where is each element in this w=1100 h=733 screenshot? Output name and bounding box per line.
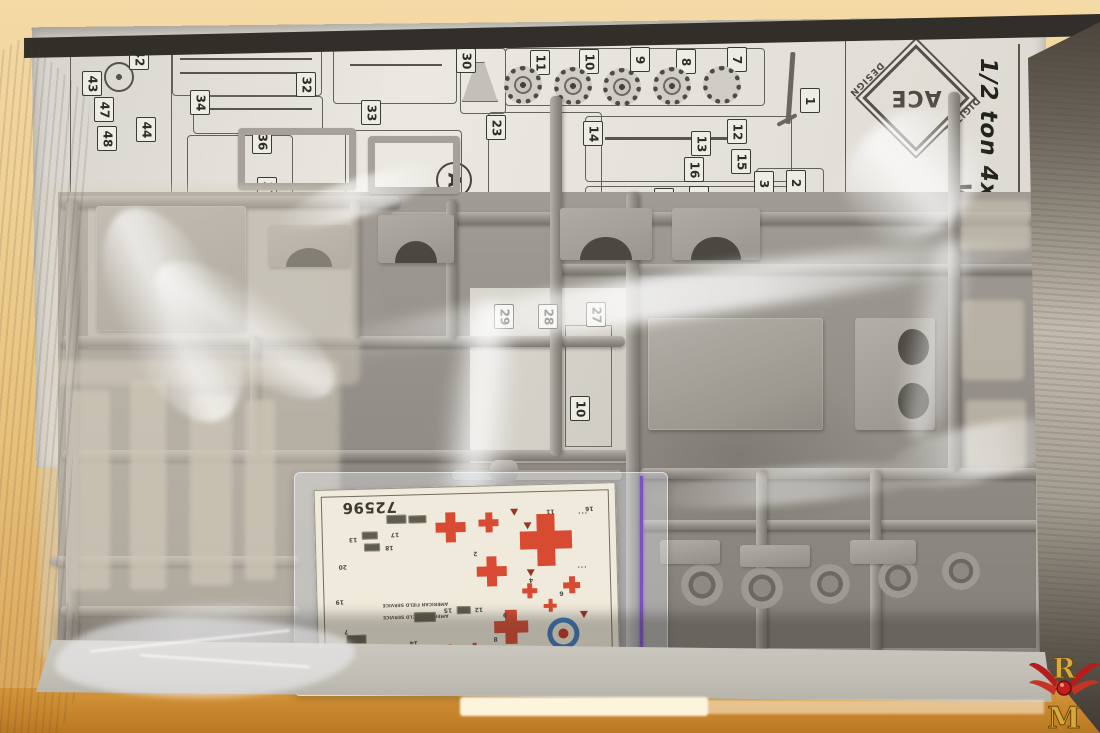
cross-bar-v <box>568 576 574 593</box>
part-number-label: 13 <box>691 131 711 156</box>
part-number: 3 <box>757 179 771 187</box>
decal-number: 17 <box>391 531 400 538</box>
part-number-label: 9 <box>630 47 650 72</box>
part-number: 43 <box>85 75 99 92</box>
cross-bar-v <box>486 556 497 586</box>
diagram-line <box>350 64 442 66</box>
decal-red-cross <box>435 512 466 543</box>
part-number-label: 47 <box>94 97 114 122</box>
rm-watermark-svg: R M <box>1028 638 1100 733</box>
sprue-part-ring <box>741 567 783 609</box>
cross-bar-v <box>527 583 532 598</box>
decal-plate-chip <box>408 515 426 523</box>
sprue-part-block <box>660 540 720 564</box>
decal-dot-group: ··· <box>577 563 587 570</box>
part-number-label: 16 <box>684 157 704 182</box>
watermark-letter-r: R <box>1052 652 1076 685</box>
part-number-label: 43 <box>82 71 102 96</box>
part-number-label: 30 <box>456 48 476 73</box>
watermark-letter-m: M <box>1047 701 1080 733</box>
decal-number: 19 <box>335 598 344 605</box>
cross-bar-v <box>548 598 552 611</box>
sprue-part-ring <box>810 564 850 604</box>
part-number: 9 <box>633 55 647 63</box>
fender-arch-cutout <box>580 237 632 260</box>
part-number: 11 <box>533 54 547 71</box>
sprue-part-frame <box>238 128 356 190</box>
decal-red-cross <box>562 576 579 593</box>
part-number-label: 23 <box>486 115 506 140</box>
rm-watermark-logo: R M <box>1028 638 1100 733</box>
decal-number: 15 <box>444 606 453 613</box>
sprue-part-panel <box>648 318 823 430</box>
part-number-label: 1 <box>800 88 820 113</box>
sprue-part-arc <box>672 208 760 260</box>
sprue-part-arc <box>560 208 652 260</box>
decal-aircraft-mark <box>527 569 535 576</box>
part-number: 12 <box>730 123 744 140</box>
decal-number: 6 <box>559 589 563 596</box>
decal-number: 11 <box>546 508 555 515</box>
decal-plate-chip <box>364 543 380 551</box>
sprue-part-block <box>740 545 810 567</box>
part-number-label: 14 <box>583 121 603 146</box>
part-number: 13 <box>694 135 708 152</box>
part-number: 10 <box>573 400 587 417</box>
part-number: 23 <box>489 119 503 136</box>
decal-red-cross <box>476 556 507 587</box>
fender-arch-cutout <box>395 241 438 263</box>
part-number: 7 <box>730 55 744 63</box>
wheel-hub <box>564 77 582 95</box>
table-reflection-strip <box>460 697 708 716</box>
wheel-drawing <box>703 66 741 104</box>
decal-dot-group: ··· <box>577 509 587 516</box>
table-reflection-strip-2 <box>704 700 1044 714</box>
cross-bar-v <box>485 512 493 532</box>
part-number: 34 <box>193 94 207 111</box>
part-number: 32 <box>299 76 313 93</box>
part-number: 10 <box>582 53 596 70</box>
part-number-label: 48 <box>97 126 117 151</box>
sprue-part-ring <box>942 552 980 590</box>
diagram-line <box>180 72 312 74</box>
wheel-hub <box>663 77 681 95</box>
part-number-label: 12 <box>727 119 747 144</box>
part-number: 2 <box>789 178 803 186</box>
wheel-drawing <box>653 67 691 105</box>
decal-number: 13 <box>349 536 358 543</box>
part-number: 15 <box>734 153 748 170</box>
fender-arch-cutout <box>691 237 740 260</box>
diagram-line <box>605 137 737 140</box>
part-number: 48 <box>100 130 114 147</box>
decal-number: 18 <box>385 544 394 551</box>
decal-aircraft-mark <box>523 522 531 529</box>
sprue-part-arc <box>378 215 454 263</box>
part-number: 8 <box>679 57 693 65</box>
decal-red-cross <box>522 583 537 598</box>
part-number: 44 <box>139 121 153 138</box>
diagram-line <box>180 58 312 60</box>
part-number: 1 <box>803 96 817 104</box>
sprue-part-ghost <box>962 300 1024 380</box>
part-number: 47 <box>97 101 111 118</box>
wheel-hub <box>514 76 532 94</box>
wheel-hub <box>613 78 631 96</box>
part-number-label: 15 <box>731 149 751 174</box>
decal-red-cross <box>543 598 556 611</box>
part-number: 33 <box>364 104 378 121</box>
decal-service-text-1: AMERICAN FIELD SERVICE <box>383 601 449 608</box>
decal-red-cross <box>519 513 572 566</box>
decal-number: 12 <box>475 606 484 613</box>
cross-bar-v <box>445 512 456 542</box>
decal-number: 2 <box>473 550 477 557</box>
part-number-label: 33 <box>361 100 381 125</box>
part-number-label: 34 <box>190 90 210 115</box>
part-number-label: 44 <box>136 117 156 142</box>
diagram-line <box>200 108 312 110</box>
part-number: 30 <box>459 52 473 69</box>
photo-model-kit-open-box: A ACE DESIGN DIGITAL 1/2 ton 4x4 W 42434… <box>0 0 1100 733</box>
cross-bar-v <box>536 514 555 566</box>
decal-plate-chip <box>386 515 406 525</box>
wheel-drawing <box>603 68 641 106</box>
part-number-label: 32 <box>296 72 316 97</box>
part-number: 14 <box>586 125 600 142</box>
decal-plate-chip <box>362 531 378 539</box>
sprue-part-ring <box>878 558 918 598</box>
sprue-rail <box>640 520 1045 530</box>
decal-red-cross <box>478 512 499 533</box>
part-number-label: 10 <box>570 396 590 421</box>
sprue-rail <box>550 96 562 456</box>
part-number: 16 <box>687 161 701 178</box>
decal-number: 4 <box>529 576 533 583</box>
decal-number: 20 <box>338 563 347 570</box>
sprue-part-block <box>850 540 916 564</box>
wheel-drawing <box>504 66 542 104</box>
decal-aircraft-mark <box>510 509 518 516</box>
sprue-part-ring <box>681 564 723 606</box>
